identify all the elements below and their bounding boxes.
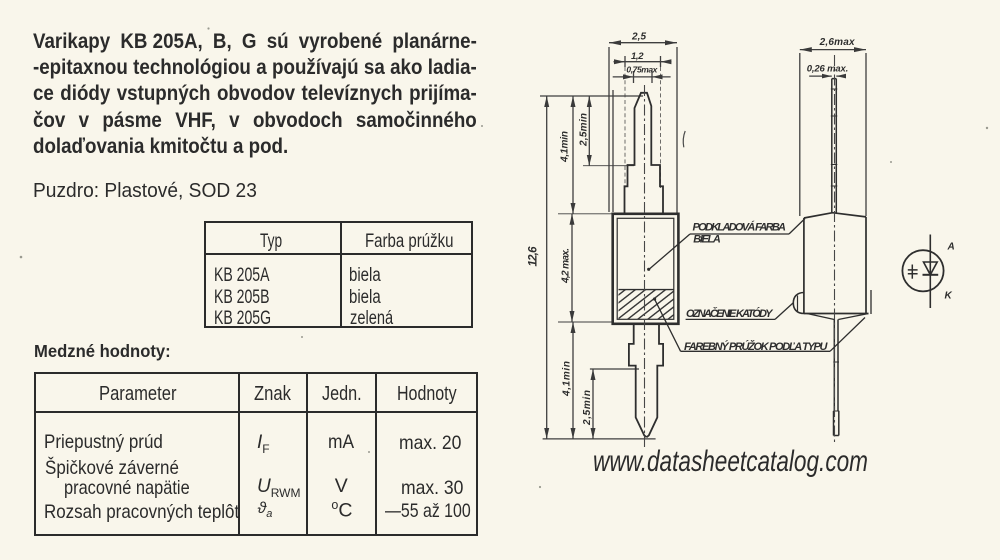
svg-text:12,6: 12,6 [528,246,540,267]
svg-text:A: A [947,241,955,252]
svg-text:4,1min: 4,1min [560,131,571,163]
svg-text:BIELA: BIELA [693,234,721,246]
svg-text:2,5min: 2,5min [582,390,593,426]
svg-text:2,5min: 2,5min [579,113,590,147]
svg-text:PODKLADOVÁ FARBA: PODKLADOVÁ FARBA [693,221,787,234]
svg-text:0,26 max.: 0,26 max. [807,64,849,75]
svg-text:1,2: 1,2 [631,51,644,62]
svg-text:OZNAČENIE KATÓDY: OZNAČENIE KATÓDY [686,307,774,320]
svg-text:0,75max: 0,75max [626,64,658,74]
svg-text:2,5: 2,5 [631,32,646,43]
svg-text:K: K [945,290,953,301]
svg-text:FAREBNÝ PRÚŽOK PODĽA TYPU: FAREBNÝ PRÚŽOK PODĽA TYPU [684,340,829,353]
svg-text:4,1min: 4,1min [562,361,573,397]
svg-text:2,6max: 2,6max [819,37,855,48]
svg-text:4,2 max.: 4,2 max. [561,248,572,284]
